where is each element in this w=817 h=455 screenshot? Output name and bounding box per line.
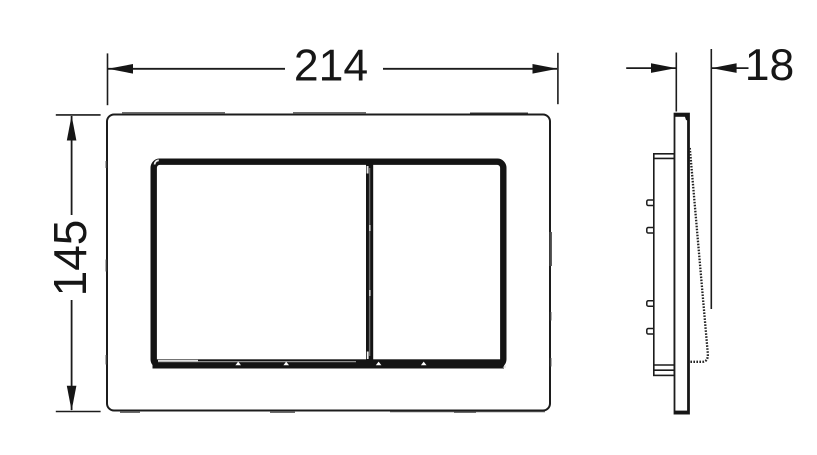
svg-text:145: 145 xyxy=(44,220,96,297)
svg-text:214: 214 xyxy=(294,42,368,91)
svg-text:18: 18 xyxy=(745,41,795,90)
